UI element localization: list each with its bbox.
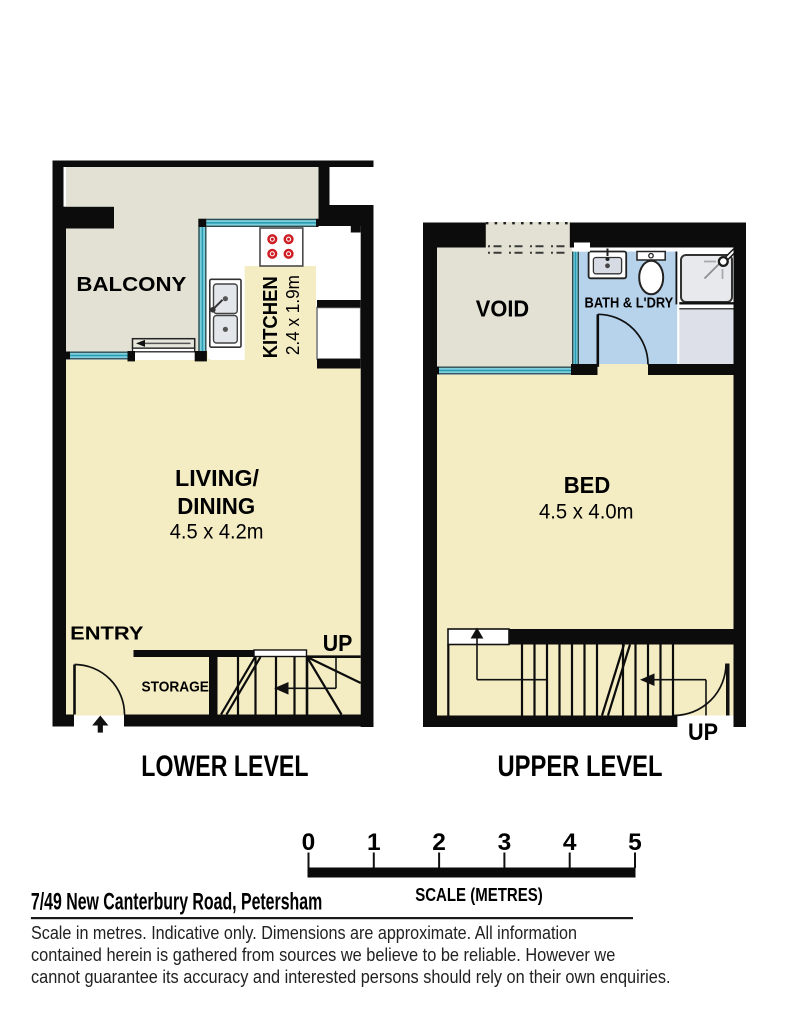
svg-text:2: 2 [432, 829, 446, 856]
svg-text:DINING: DINING [177, 493, 255, 519]
svg-text:4.5 x 4.0m: 4.5 x 4.0m [539, 501, 634, 524]
svg-text:ENTRY: ENTRY [70, 624, 143, 644]
svg-text:STORAGE: STORAGE [141, 680, 209, 696]
svg-text:LIVING/: LIVING/ [175, 465, 260, 491]
svg-text:VOID: VOID [476, 295, 529, 321]
svg-text:4: 4 [563, 829, 577, 856]
svg-text:LOWER LEVEL: LOWER LEVEL [141, 750, 308, 783]
svg-text:SCALE (METRES): SCALE (METRES) [415, 885, 543, 905]
svg-text:UP: UP [323, 630, 353, 656]
svg-text:BATH & L'DRY: BATH & L'DRY [585, 294, 674, 311]
svg-text:BED: BED [564, 472, 611, 498]
svg-text:cannot guarantee its accuracy: cannot guarantee its accuracy and intere… [31, 967, 671, 987]
svg-text:1: 1 [367, 829, 381, 856]
svg-text:KITCHEN: KITCHEN [259, 276, 282, 358]
svg-text:5: 5 [628, 829, 642, 856]
svg-text:Scale in metres. Indicative on: Scale in metres. Indicative only. Dimens… [31, 923, 577, 943]
svg-text:4.5 x 4.2m: 4.5 x 4.2m [170, 521, 264, 544]
svg-text:UPPER LEVEL: UPPER LEVEL [498, 750, 663, 783]
svg-text:3: 3 [498, 829, 512, 856]
svg-text:0: 0 [302, 829, 316, 856]
svg-text:UP: UP [688, 720, 718, 746]
svg-text:7/49 New Canterbury Road, Pete: 7/49 New Canterbury Road, Petersham [31, 889, 322, 916]
svg-text:BALCONY: BALCONY [76, 273, 186, 296]
svg-text:2.4 x 1.9m: 2.4 x 1.9m [282, 275, 303, 355]
svg-text:contained herein is gathered f: contained herein is gathered from source… [31, 945, 615, 965]
